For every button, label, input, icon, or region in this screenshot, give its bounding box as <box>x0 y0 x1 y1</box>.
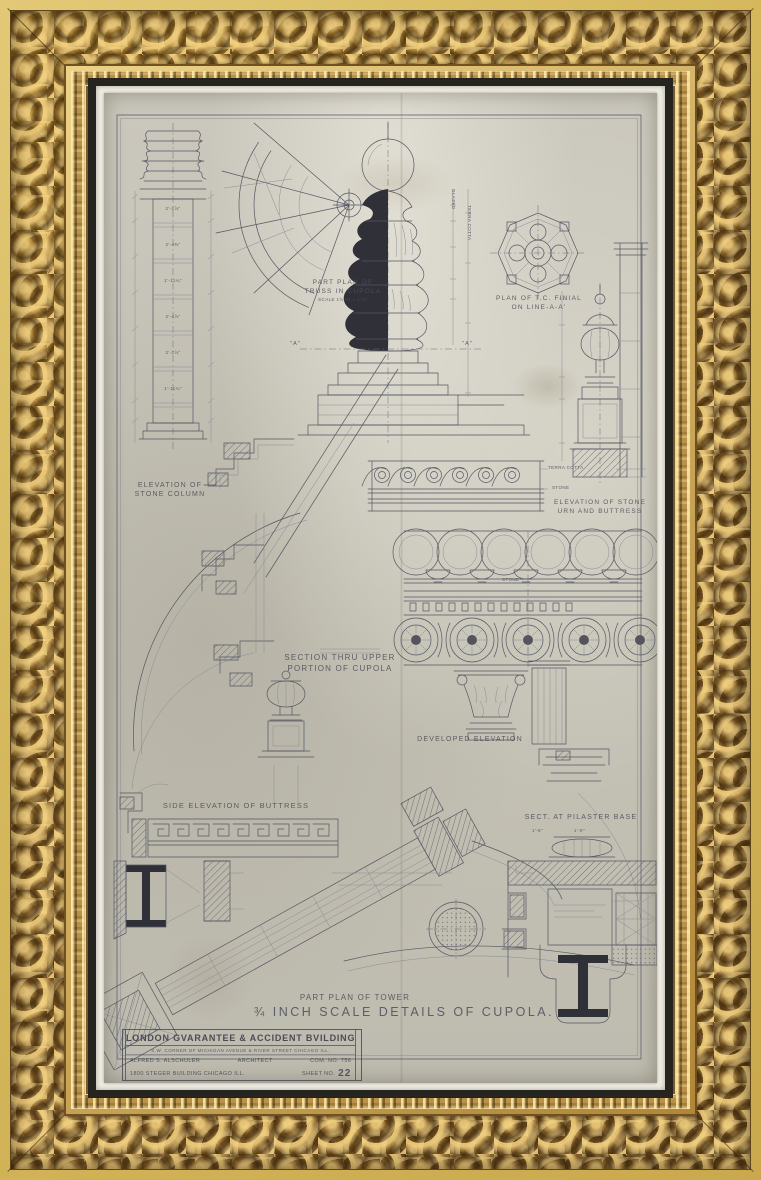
architect-name: ALFRED S. ALSCHULER <box>130 1058 200 1064</box>
label-finial-plan: PLAN OF T.C. FINIAL ON LINE-A-A' <box>480 295 598 313</box>
greek-key-band <box>120 784 338 857</box>
title-block: LONDON GVARANTEE & ACCIDENT BVILDING S.W… <box>122 1029 362 1081</box>
label-pilaster-base: SECT. AT PILASTER BASE <box>512 813 650 822</box>
dim-column: 2'-4⅜" <box>145 242 201 248</box>
dim-pilaster: 1'-8" <box>574 828 585 834</box>
sheet-number: 22 <box>338 1068 351 1079</box>
dim-pilaster: 1'-8" <box>532 828 543 834</box>
stone-column-elevation <box>132 123 214 449</box>
building-address: S.W. CORNER OF MICHIGAN AVENUE & RIVER S… <box>126 1046 355 1055</box>
dim-column: 1'-11¼" <box>145 386 201 392</box>
label-tower-plan: PART PLAN OF TOWER <box>288 993 422 1004</box>
steel-beams <box>114 861 244 939</box>
label-stone-column: ELEVATION OF STONE COLUMN <box>114 481 226 500</box>
pilaster-base-section <box>502 749 657 1023</box>
title-block-main: LONDON GVARANTEE & ACCIDENT BVILDING S.W… <box>126 1030 355 1080</box>
office-row: 1800 STEGER BUILDING CHICAGO ILL. SHEET … <box>126 1068 355 1081</box>
note-terra-cotta-v: TERRA COTTA <box>466 205 472 241</box>
sheet-title: ¾ INCH SCALE DETAILS OF CUPOLA. <box>250 1005 558 1019</box>
commission-number: COM. NO. 756 <box>310 1058 351 1064</box>
building-name: LONDON GVARANTEE & ACCIDENT BVILDING <box>126 1030 355 1046</box>
finial-plan <box>490 205 586 301</box>
note-stone-2: STONE <box>502 577 519 583</box>
dim-column: 1'-11¼" <box>145 278 201 284</box>
office-address: 1800 STEGER BUILDING CHICAGO ILL. <box>130 1071 245 1077</box>
label-developed-elevation: DEVELOPED ELEVATION <box>400 735 540 744</box>
drawing-sheet: ELEVATION OF STONE COLUMN PART PLAN OF T… <box>104 93 657 1083</box>
dim-column: 2'-4⅞" <box>145 314 201 320</box>
urn-elevation <box>559 243 648 485</box>
title-block-right-stub <box>355 1030 361 1080</box>
dim-column: 2'-2⅞" <box>145 350 201 356</box>
label-buttress: SIDE ELEVATION OF BUTTRESS <box>150 801 322 811</box>
mark-a-right: "A" <box>462 341 473 348</box>
label-truss-plan: PART PLAN OF TRUSS IN CUPOLA SCALE 1½ IN… <box>284 279 402 303</box>
note-stone: STONE <box>552 485 569 491</box>
note-glazed: GLAZED <box>450 189 456 209</box>
label-section: SECTION THRU UPPER PORTION OF CUPOLA <box>270 653 410 675</box>
framed-architectural-drawing: ELEVATION OF STONE COLUMN PART PLAN OF T… <box>0 0 761 1180</box>
cresting-band <box>393 529 657 667</box>
cupola-section <box>132 355 398 803</box>
mark-a-left: "A" <box>290 341 301 348</box>
label-urn: ELEVATION OF STONE URN AND BUTTRESS <box>548 499 652 517</box>
dim-column: 2'-2⅞" <box>145 206 201 212</box>
architect-row: ALFRED S. ALSCHULER ARCHITECT COM. NO. 7… <box>126 1055 355 1068</box>
architect-title: ARCHITECT <box>238 1058 273 1064</box>
capital-detail <box>454 661 570 744</box>
note-terra-cotta: TERRA COTTA <box>548 465 584 471</box>
sheet-number-label: SHEET NO. <box>302 1071 335 1077</box>
wave-frieze <box>362 461 548 511</box>
